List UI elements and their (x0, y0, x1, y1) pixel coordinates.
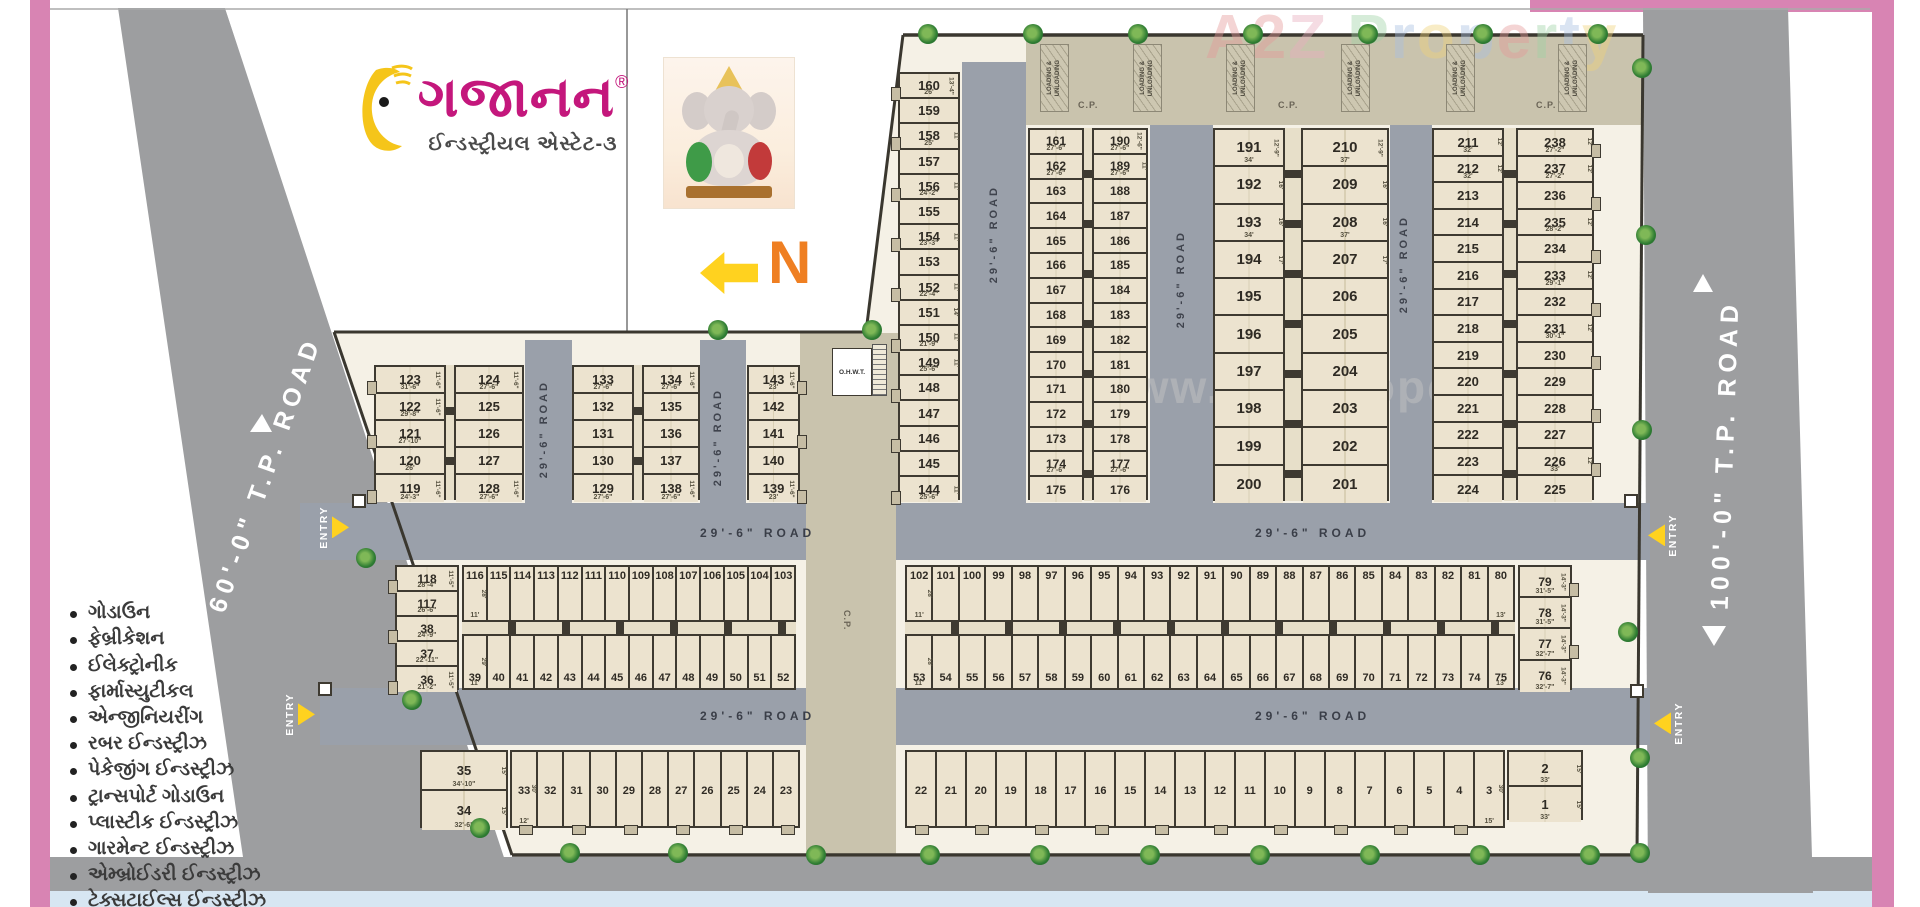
plot-80: 8013' (1489, 567, 1513, 620)
plot-224: 224 (1434, 476, 1502, 503)
tree-icon (862, 320, 882, 340)
plot-81: 81 (1462, 567, 1488, 620)
plot-145: 145 (900, 452, 958, 477)
plot-166: 166 (1030, 254, 1082, 279)
plot-212: 21232'12' (1434, 157, 1502, 184)
plot-169: 169 (1030, 328, 1082, 353)
plot-227: 227 (1518, 423, 1592, 450)
plot-103: 103 (772, 567, 794, 620)
plot-block-bC_L: 19134'12'-9"19216'19334'16'19417'1951961… (1213, 128, 1285, 501)
plot-231: 23130'-1"12' (1518, 316, 1592, 343)
plot-90: 90 (1224, 567, 1250, 620)
plot-7: 7 (1356, 752, 1386, 826)
road-label: 29'-6" ROAD (538, 380, 550, 478)
plot-101: 101 (933, 567, 959, 620)
plot-187: 187 (1094, 204, 1146, 229)
plot-150: 15021'-9"11' (900, 326, 958, 351)
plot-68: 68 (1304, 636, 1330, 688)
plot-93: 93 (1145, 567, 1171, 620)
plot-237: 23727'-2"12' (1518, 157, 1592, 184)
plot-220: 220 (1434, 369, 1502, 396)
plot-223: 223 (1434, 449, 1502, 476)
plot-113: 113 (535, 567, 559, 620)
registered-mark: ® (615, 72, 628, 92)
plot-102: 10211'28' (907, 567, 933, 620)
plot-73: 73 (1436, 636, 1462, 688)
plot-41: 41 (511, 636, 535, 688)
estate-subtitle: ઈન્ડસ્ટ્રીયલ એસ્ટેટ-૩ (418, 133, 629, 156)
plot-11: 11 (1236, 752, 1266, 826)
tree-icon (918, 24, 938, 44)
plot-184: 184 (1094, 279, 1146, 304)
plot-22: 22 (907, 752, 937, 826)
plot-211: 21132'12' (1434, 130, 1502, 157)
plot-160: 16026'13'-4" (900, 74, 958, 99)
industry-item: ઈલેક્ટ્રોનીક (66, 655, 316, 677)
industry-item: ગારમેન્ટ ઈન્ડસ્ટ્રીઝ (66, 838, 316, 860)
industry-item: પ્લાસ્ટીક ઈન્ડસ્ટ્રીઝ (66, 812, 316, 834)
plot-78: 7831'-5"14'-3" (1520, 598, 1570, 629)
plot-176: 176 (1094, 477, 1146, 502)
plot-72: 72 (1409, 636, 1435, 688)
plot-155: 155 (900, 200, 958, 225)
plot-block-bC_R: 21037'12'-9"20916'20837'16'20717'2062052… (1301, 128, 1389, 501)
plot-151: 15114' (900, 301, 958, 326)
plot-203: 203 (1303, 391, 1387, 428)
plot-174: 17427'-6" (1030, 452, 1082, 477)
plot-136: 136 (644, 421, 698, 448)
plot-143: 14323'11'-6" (749, 367, 798, 394)
plot-1: 133'15' (1509, 787, 1581, 822)
plot-53: 5311'28' (907, 636, 933, 688)
plot-197: 197 (1215, 354, 1283, 391)
plot-70: 70 (1356, 636, 1382, 688)
tree-icon (1473, 24, 1493, 44)
plot-180: 180 (1094, 378, 1146, 403)
tree-icon (1632, 58, 1652, 78)
industry-item: ફેબ્રીકેશન (66, 628, 316, 650)
plot-block-midLTop: 11611'28'1151141131121111101091081071061… (462, 565, 796, 622)
plot-116: 11611'28' (464, 567, 488, 620)
plot-171: 171 (1030, 378, 1082, 403)
plot-199: 199 (1215, 428, 1283, 465)
plot-28: 28 (643, 752, 669, 826)
tree-icon (920, 845, 940, 865)
plot-34: 3432'-6"15' (422, 791, 506, 830)
plot-126: 126 (456, 421, 522, 448)
tree-icon (1632, 420, 1652, 440)
plot-222: 222 (1434, 423, 1502, 450)
plot-33: 3312'30' (512, 752, 538, 826)
plot-48: 48 (677, 636, 701, 688)
plot-77: 7732'-7"14'-3" (1520, 629, 1570, 660)
plot-47: 47 (654, 636, 678, 688)
plot-149: 14925'-6"11' (900, 351, 958, 376)
plot-191: 19134'12'-9" (1215, 130, 1283, 167)
plot-157: 157 (900, 150, 958, 175)
plot-31: 31 (564, 752, 590, 826)
corridor (446, 365, 454, 500)
tree-icon (470, 818, 490, 838)
tree-icon (1636, 225, 1656, 245)
plot-144: 14425'-6"11' (900, 477, 958, 502)
plot-130: 130 (574, 448, 632, 475)
plot-108: 108 (654, 567, 678, 620)
plot-46: 46 (630, 636, 654, 688)
plot-225: 225 (1518, 476, 1592, 503)
tree-icon (806, 845, 826, 865)
plot-block-colA: 16026'13'-4"15915825'11'15715624'-2"11'1… (898, 72, 960, 500)
plot-133: 13327'-6" (574, 367, 632, 394)
entry-marker: ENTRY (1654, 702, 1685, 745)
road-horizontal-2 (320, 688, 1650, 745)
plot-123: 12331'-6"11'-6" (376, 367, 444, 394)
plot-141: 141 (749, 421, 798, 448)
plot-75: 7513' (1489, 636, 1513, 688)
entry-marker: ENTRY (1648, 514, 1679, 557)
plot-202: 202 (1303, 428, 1387, 465)
plot-131: 131 (574, 421, 632, 448)
plot-196: 196 (1215, 316, 1283, 353)
plot-2: 233'15' (1509, 752, 1581, 787)
road-label: 29'-6" ROAD (700, 526, 815, 540)
gate-post (352, 494, 366, 508)
plot-167: 167 (1030, 279, 1082, 304)
plot-120: 12026' (376, 448, 444, 475)
tree-icon (668, 843, 688, 863)
plot-233: 23329'-1"12' (1518, 263, 1592, 290)
plot-block-bB_L: 16127'-6"16227'-6"1631641651661671681691… (1028, 128, 1084, 500)
tree-icon (1588, 24, 1608, 44)
entry-marker: ENTRY (284, 693, 315, 736)
plot-62: 62 (1145, 636, 1171, 688)
corridor (462, 622, 796, 634)
plot-127: 127 (456, 448, 522, 475)
plot-198: 198 (1215, 391, 1283, 428)
road-label: 29'-6" ROAD (1398, 215, 1410, 313)
plot-35: 3534'-10"15' (422, 752, 506, 791)
industry-item: ગોડાઉન (66, 602, 316, 624)
plot-179: 179 (1094, 403, 1146, 428)
plot-226: 22633'12' (1518, 449, 1592, 476)
plot-153: 153 (900, 250, 958, 275)
plot-168: 168 (1030, 304, 1082, 329)
plot-186: 186 (1094, 229, 1146, 254)
plot-49: 49 (701, 636, 725, 688)
plot-6: 6 (1386, 752, 1416, 826)
plot-236: 236 (1518, 183, 1592, 210)
plot-235: 23528'-2"12' (1518, 210, 1592, 237)
plot-21: 21 (937, 752, 967, 826)
industry-item: ટ્રાન્સપોર્ટ ગોડાઉન (66, 786, 316, 808)
corridor (1084, 128, 1092, 501)
plot-23: 23 (774, 752, 798, 826)
plot-17: 17 (1057, 752, 1087, 826)
tree-icon (560, 843, 580, 863)
north-label: N (768, 228, 811, 297)
plot-63: 63 (1171, 636, 1197, 688)
site-plan: O.H.W.T. 60'-0" T.P. ROAD 100'-0" T.P. R… (0, 0, 1920, 907)
plot-189: 18927'-6"11' (1094, 155, 1146, 180)
loading-unloading-zone: LOADING &UNLOADING (1133, 44, 1162, 112)
plot-205: 205 (1303, 316, 1387, 353)
plot-128: 12827'-6"11'-6" (456, 475, 522, 502)
plot-94: 94 (1119, 567, 1145, 620)
industry-item: ટેક્સટાઈલ્સ ઈન્ડસ્ટ્રીઝ (66, 890, 316, 907)
plot-140: 140 (749, 448, 798, 475)
plot-118: 11828'-4"11'-5" (397, 567, 457, 592)
plot-173: 173 (1030, 428, 1082, 453)
plot-200: 200 (1215, 466, 1283, 503)
plot-92: 92 (1171, 567, 1197, 620)
road-vertical-3 (1390, 125, 1432, 503)
plot-block-bB_R: 19027'-6"12'-6"18927'-6"11'1881871861851… (1092, 128, 1148, 500)
plot-214: 214 (1434, 210, 1502, 237)
plot-14: 14 (1146, 752, 1176, 826)
plot-188: 188 (1094, 180, 1146, 205)
tree-icon (1470, 845, 1490, 865)
plot-210: 21037'12'-9" (1303, 130, 1387, 167)
plot-54: 54 (933, 636, 959, 688)
road-label: 29'-6" ROAD (1255, 526, 1370, 540)
plot-88: 88 (1277, 567, 1303, 620)
plot-74: 74 (1462, 636, 1488, 688)
plot-3: 315'30' (1475, 752, 1503, 826)
plot-228: 228 (1518, 396, 1592, 423)
plot-block-botRowL: 3312'30'32313029282726252423 (510, 750, 800, 828)
plot-16: 16 (1086, 752, 1116, 826)
plot-107: 107 (677, 567, 701, 620)
plot-79: 7931'-5"14'-3" (1520, 567, 1570, 598)
plot-39: 3911'29' (464, 636, 488, 688)
plot-42: 42 (535, 636, 559, 688)
plot-37: 3722'-11" (397, 642, 457, 667)
plot-98: 98 (1013, 567, 1039, 620)
plot-104: 104 (749, 567, 773, 620)
road-label: 29'-6" ROAD (712, 388, 724, 486)
plot-147: 147 (900, 401, 958, 426)
cp-label: C.P. (842, 610, 852, 630)
plot-115: 115 (488, 567, 512, 620)
plot-9: 9 (1296, 752, 1326, 826)
plot-207: 20717' (1303, 242, 1387, 279)
tree-icon (1630, 843, 1650, 863)
plot-block-b129_R: 13427'-6"11'-6"13513613713827'-6"11'-6" (642, 365, 700, 500)
plot-84: 84 (1383, 567, 1409, 620)
road-horizontal-1 (300, 503, 1650, 560)
road-label: 29'-6" ROAD (700, 709, 815, 723)
plot-109: 109 (630, 567, 654, 620)
loading-unloading-zone: LOADING &UNLOADING (1446, 44, 1475, 112)
gate-post (1630, 684, 1644, 698)
plot-18: 18 (1027, 752, 1057, 826)
plot-165: 165 (1030, 229, 1082, 254)
plot-block-midEdge: 11828'-4"11'-5"11726'-6"3824'-9"3722'-11… (395, 565, 459, 690)
plot-87: 87 (1304, 567, 1330, 620)
plot-193: 19334'16' (1215, 205, 1283, 242)
plot-137: 137 (644, 448, 698, 475)
plot-19: 19 (997, 752, 1027, 826)
entry-marker: ENTRY (318, 506, 349, 549)
plot-134: 13427'-6"11'-6" (644, 367, 698, 394)
plot-block-botStackL: 3534'-10"15'3432'-6"15' (420, 750, 508, 828)
plot-204: 204 (1303, 354, 1387, 391)
plot-229: 229 (1518, 369, 1592, 396)
cp-label: C.P. (1278, 100, 1298, 110)
corridor (1285, 128, 1301, 501)
plot-83: 83 (1409, 567, 1435, 620)
plot-block-b119_L: 12331'-6"11'-6"12229'-8"11'-6"12127'-10"… (374, 365, 446, 500)
plot-221: 221 (1434, 396, 1502, 423)
plot-213: 213 (1434, 183, 1502, 210)
plot-106: 106 (701, 567, 725, 620)
plot-52: 52 (772, 636, 794, 688)
plot-57: 57 (1013, 636, 1039, 688)
plot-219: 219 (1434, 343, 1502, 370)
plot-65: 65 (1224, 636, 1250, 688)
loading-unloading-zone: LOADING &UNLOADING (1558, 44, 1587, 112)
plot-96: 96 (1066, 567, 1092, 620)
plot-185: 185 (1094, 254, 1146, 279)
plot-12: 12 (1206, 752, 1236, 826)
plot-190: 19027'-6"12'-6" (1094, 130, 1146, 155)
tree-icon (1140, 845, 1160, 865)
plot-66: 66 (1251, 636, 1277, 688)
plot-89: 89 (1251, 567, 1277, 620)
plot-164: 164 (1030, 204, 1082, 229)
plot-44: 44 (583, 636, 607, 688)
plot-234: 234 (1518, 236, 1592, 263)
plot-142: 142 (749, 394, 798, 421)
industry-list: ગોડાઉનફેબ્રીકેશનઈલેક્ટ્રોનીકફાર્માસ્યુટી… (66, 598, 316, 907)
plot-97: 97 (1039, 567, 1065, 620)
tree-icon (1243, 24, 1263, 44)
plot-20: 20 (967, 752, 997, 826)
plot-59: 59 (1066, 636, 1092, 688)
plot-76: 7632'-7"14'-3" (1520, 661, 1570, 692)
tree-icon (1358, 24, 1378, 44)
plot-100: 100 (960, 567, 986, 620)
logo: ગજાનન® ઈન્ડસ્ટ્રીયલ એસ્ટેટ-૩ (345, 64, 645, 156)
plot-161: 16127'-6" (1030, 130, 1082, 155)
plot-block-bD_R: 23827'-2"12'23727'-2"12'23623528'-2"12'2… (1516, 128, 1594, 500)
tree-icon (1023, 24, 1043, 44)
loading-unloading-zone: LOADING &UNLOADING (1226, 44, 1255, 112)
logo-mark-icon (362, 64, 414, 156)
industry-item: એમ્બ્રોઈડરી ઈન્ડસ્ટ્રીઝ (66, 864, 316, 886)
plot-block-midLBot: 3911'29'40414243444546474849505152 (462, 634, 796, 690)
road-label: 29'-6" ROAD (1175, 230, 1187, 328)
plot-175: 175 (1030, 477, 1082, 502)
plot-10: 10 (1266, 752, 1296, 826)
plot-230: 230 (1518, 343, 1592, 370)
plot-block-col139: 14323'11'-6"14214114013923'11'-6" (747, 365, 800, 500)
plot-69: 69 (1330, 636, 1356, 688)
plot-71: 71 (1383, 636, 1409, 688)
gate-post (1624, 494, 1638, 508)
plot-112: 112 (559, 567, 583, 620)
industry-item: પેકેજીંગ ઈન્ડસ્ટ્રીઝ (66, 759, 316, 781)
plot-82: 82 (1436, 567, 1462, 620)
plot-block-bD_L: 21132'12'21232'12'2132142152162172182192… (1432, 128, 1504, 500)
industry-item: રબર ઈન્ડસ્ટ્રીઝ (66, 733, 316, 755)
plot-154: 15423'-3"11' (900, 225, 958, 250)
tree-icon (1580, 845, 1600, 865)
plot-30: 30 (591, 752, 617, 826)
tree-icon (708, 320, 728, 340)
plot-45: 45 (606, 636, 630, 688)
plot-95: 95 (1092, 567, 1118, 620)
plot-162: 16227'-6" (1030, 155, 1082, 180)
plot-148: 148 (900, 376, 958, 401)
gate-post (318, 682, 332, 696)
plot-block-botRowR: 22212019181716151413121110987654315'30' (905, 750, 1505, 828)
road-label: 29'-6" ROAD (1255, 709, 1370, 723)
plot-91: 91 (1198, 567, 1224, 620)
plot-50: 50 (725, 636, 749, 688)
plot-block-midRBot: 5311'28'54555657585960616263646566676869… (905, 634, 1515, 690)
plot-122: 12229'-8"11'-6" (376, 394, 444, 421)
plot-61: 61 (1119, 636, 1145, 688)
road-label: 29'-6" ROAD (988, 185, 1000, 283)
loading-unloading-zone: LOADING &UNLOADING (1341, 44, 1370, 112)
plot-177: 17727'-6" (1094, 452, 1146, 477)
tree-icon (1618, 622, 1638, 642)
plot-67: 67 (1277, 636, 1303, 688)
plot-24: 24 (748, 752, 774, 826)
tree-icon (1360, 845, 1380, 865)
tree-icon (356, 548, 376, 568)
ohwt-structure: O.H.W.T. (832, 348, 872, 396)
plot-138: 13827'-6"11'-6" (644, 475, 698, 502)
industry-item: એન્જીનિયરીંગ (66, 707, 316, 729)
plot-29: 29 (617, 752, 643, 826)
plot-51: 51 (749, 636, 773, 688)
plot-27: 27 (669, 752, 695, 826)
tree-icon (402, 690, 422, 710)
plot-117: 11726'-6" (397, 592, 457, 617)
tree-icon (1030, 845, 1050, 865)
plot-194: 19417' (1215, 242, 1283, 279)
plot-block-botStackR: 233'15'133'15' (1507, 750, 1583, 820)
plot-43: 43 (559, 636, 583, 688)
cp-band (806, 503, 896, 855)
plot-195: 195 (1215, 279, 1283, 316)
ganesh-idol-image (663, 57, 795, 209)
plot-13: 13 (1176, 752, 1206, 826)
industry-item: ફાર્માસ્યુટીકલ (66, 681, 316, 703)
plot-114: 114 (511, 567, 535, 620)
plot-232: 232 (1518, 290, 1592, 317)
plot-block-b129_L: 13327'-6"13213113012927'-6" (572, 365, 634, 500)
plot-110: 110 (606, 567, 630, 620)
plot-216: 216 (1434, 263, 1502, 290)
plot-152: 15222'-4"11' (900, 276, 958, 301)
plot-201: 201 (1303, 466, 1387, 503)
plot-block-midRTop: 10211'28'1011009998979695949392919089888… (905, 565, 1515, 622)
plot-60: 60 (1092, 636, 1118, 688)
tree-icon (1128, 24, 1148, 44)
plot-64: 64 (1198, 636, 1224, 688)
corridor (905, 622, 1515, 634)
plot-163: 163 (1030, 180, 1082, 205)
cp-label: C.P. (1078, 100, 1098, 110)
tree-icon (1630, 748, 1650, 768)
plot-85: 85 (1356, 567, 1382, 620)
plot-124: 12427'-6"11'-6" (456, 367, 522, 394)
plot-183: 183 (1094, 304, 1146, 329)
plot-36: 3621'-2"11'-5" (397, 667, 457, 692)
